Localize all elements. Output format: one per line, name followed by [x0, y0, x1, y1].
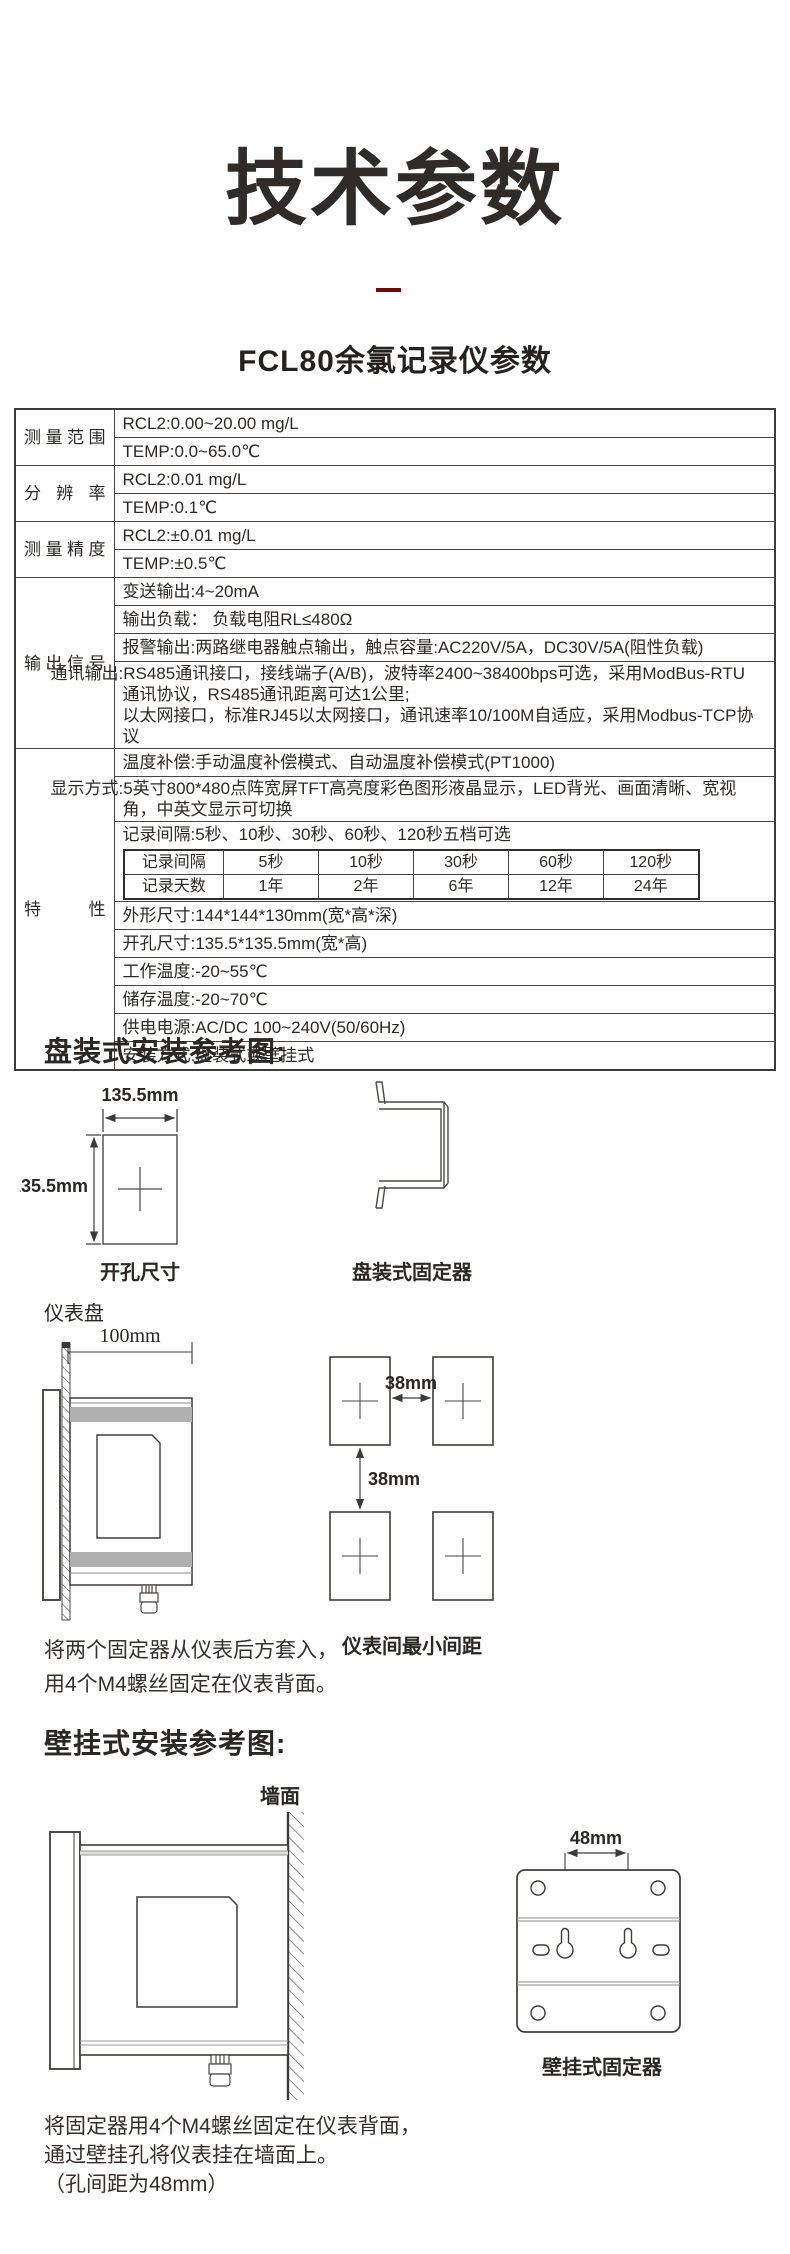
spec-group-label: 测量范围: [15, 409, 114, 466]
section-heading-wall-install: 壁挂式安装参考图:: [44, 1722, 286, 1762]
cable-gland: [140, 1585, 158, 1613]
wall-hatching: [289, 1812, 304, 2100]
spec-table-wrap: 测量范围 RCL2:0.00~20.00 mg/L TEMP:0.0~65.0℃…: [14, 408, 776, 1071]
table-row: TEMP:0.1℃: [15, 494, 775, 522]
record-cell-value: 1年: [224, 875, 319, 900]
spec-value-cell: 外形尺寸:144*144*130mm(宽*高*深): [114, 902, 775, 930]
depth-dim-label: 100mm: [99, 1325, 161, 1347]
table-row: 报警输出:两路继电器触点输出，触点容量:AC220V/5A，DC30V/5A(阻…: [15, 634, 775, 662]
fixer-band-bottom: [70, 1552, 192, 1567]
table-row: 通讯输出:RS485通讯接口，接线端子(A/B)，波特率2400~38400bp…: [15, 662, 775, 749]
wall-mount-side-view-diagram: [30, 1808, 310, 2106]
spec-value-cell: 温度补偿:手动温度补偿模式、自动温度补偿模式(PT1000): [114, 749, 775, 777]
wall-caption-line3: （孔间距为48mm）: [44, 2170, 421, 2199]
record-header-cell: 记录天数: [124, 875, 224, 900]
wall-caption-line2: 通过壁挂孔将仪表挂在墙面上。: [44, 2141, 421, 2170]
page-subtitle: FCL80余氯记录仪参数: [0, 336, 790, 380]
record-cell-value: 12年: [509, 875, 604, 900]
wall-plate-label: 壁挂式固定器: [518, 2051, 686, 2080]
cutout-width-dim-label: 135.5mm: [101, 1085, 178, 1105]
spacing-figure-label: 仪表间最小间距: [338, 1630, 486, 1659]
table-row: 记录天数 1年 2年 6年 12年 24年: [124, 875, 699, 900]
table-row: 测量范围 RCL2:0.00~20.00 mg/L: [15, 409, 775, 438]
spec-value-cell: TEMP:0.1℃: [114, 494, 775, 522]
wall-install-caption: 将固定器用4个M4螺丝固定在仪表背面， 通过壁挂孔将仪表挂在墙面上。 （孔间距为…: [44, 2112, 421, 2199]
meter-front-bezel: [43, 1390, 60, 1600]
table-row: 输出信号 变送输出:4~20mA: [15, 578, 775, 606]
table-row: 记录间隔 5秒 10秒 30秒 60秒 120秒: [124, 850, 699, 875]
cutout-dimension-diagram: 135.5mm 135.5mm: [20, 1075, 200, 1253]
section-heading-panel-install: 盘装式安装参考图:: [44, 1030, 286, 1070]
spec-value-cell: 开孔尺寸:135.5*135.5mm(宽*高): [114, 930, 775, 958]
cable-gland: [209, 2055, 231, 2086]
record-cell-value: 5秒: [224, 850, 319, 875]
spec-value-cell: RCL2:±0.01 mg/L: [114, 522, 775, 550]
record-header-cell: 记录间隔: [124, 850, 224, 875]
record-interval-text: 记录间隔:5秒、10秒、30秒、60秒、120秒五档可选: [123, 823, 767, 846]
spec-value-cell: 报警输出:两路继电器触点输出，触点容量:AC220V/5A，DC30V/5A(阻…: [114, 634, 775, 662]
spec-value-cell: 变送输出:4~20mA: [114, 578, 775, 606]
cutout-figure-label: 开孔尺寸: [83, 1256, 197, 1285]
table-row: TEMP:0.0~65.0℃: [15, 438, 775, 466]
spec-group-label: 分辨率: [15, 466, 114, 522]
table-row: 测量精度 RCL2:±0.01 mg/L: [15, 522, 775, 550]
record-cell-value: 60秒: [509, 850, 604, 875]
wall-plate-diagram: 48mm: [505, 1822, 700, 2044]
record-cell-value: 6年: [414, 875, 509, 900]
table-row: 记录间隔:5秒、10秒、30秒、60秒、120秒五档可选 记录间隔 5秒 10秒…: [15, 822, 775, 902]
wall-surface-label: 墙面: [260, 1780, 300, 1809]
table-row: 输出负载： 负载电阻RL≤480Ω: [15, 606, 775, 634]
panel-bracket-diagram: [362, 1080, 454, 1228]
spec-table: 测量范围 RCL2:0.00~20.00 mg/L TEMP:0.0~65.0℃…: [14, 408, 776, 1071]
table-row: TEMP:±0.5℃: [15, 550, 775, 578]
spec-group-label: 测量精度: [15, 522, 114, 578]
meter-window-cutout: [137, 1897, 237, 2007]
table-row: 开孔尺寸:135.5*135.5mm(宽*高): [15, 930, 775, 958]
meter-side-view-diagram: 100mm: [35, 1290, 200, 1625]
wall-caption-line1: 将固定器用4个M4螺丝固定在仪表背面，: [44, 2112, 421, 2141]
meter-window-cutout: [97, 1435, 160, 1538]
table-row: 分辨率 RCL2:0.01 mg/L: [15, 466, 775, 494]
record-cell-value: 24年: [604, 875, 699, 900]
table-row: 工作温度:-20~55℃: [15, 958, 775, 986]
spacing-h-dim-label: 38mm: [385, 1373, 437, 1393]
table-row: 外形尺寸:144*144*130mm(宽*高*深): [15, 902, 775, 930]
spec-value-cell: 显示方式:5英寸800*480点阵宽屏TFT高亮度彩色图形液晶显示，LED背光、…: [114, 777, 775, 822]
panel-bracket-label: 盘装式固定器: [347, 1256, 477, 1285]
spec-value-cell: 工作温度:-20~55℃: [114, 958, 775, 986]
meter-spacing-diagram: 38mm 38mm: [320, 1345, 505, 1605]
fixer-band-top: [70, 1407, 192, 1422]
cutout-height-dim-label: 135.5mm: [20, 1176, 88, 1196]
table-row: 特性 温度补偿:手动温度补偿模式、自动温度补偿模式(PT1000): [15, 749, 775, 777]
panel-caption-line2: 用4个M4螺丝固定在仪表背面。: [44, 1668, 338, 1702]
spec-value-cell: TEMP:0.0~65.0℃: [114, 438, 775, 466]
page-title: 技术参数: [0, 146, 790, 234]
spec-value-cell: RCL2:0.00~20.00 mg/L: [114, 409, 775, 438]
table-row: 储存温度:-20~70℃: [15, 986, 775, 1014]
spec-value-cell: 通讯输出:RS485通讯接口，接线端子(A/B)，波特率2400~38400bp…: [114, 662, 775, 749]
record-cell: 记录间隔:5秒、10秒、30秒、60秒、120秒五档可选 记录间隔 5秒 10秒…: [114, 822, 775, 902]
panel-hatched-strip: [62, 1343, 70, 1620]
spec-value-cell: 输出负载： 负载电阻RL≤480Ω: [114, 606, 775, 634]
panel-caption-line1: 将两个固定器从仪表后方套入，: [44, 1634, 338, 1668]
record-interval-table: 记录间隔 5秒 10秒 30秒 60秒 120秒 记录天数 1年: [123, 849, 700, 900]
accent-dash: [376, 288, 401, 292]
record-cell-value: 120秒: [604, 850, 699, 875]
meter-front-bezel: [50, 1832, 80, 2069]
technical-parameters-page: 技术参数 FCL80余氯记录仪参数 测量范围 RCL2:0.00~20.00 m…: [0, 0, 790, 2254]
record-cell-value: 10秒: [319, 850, 414, 875]
spec-value-cell: 储存温度:-20~70℃: [114, 986, 775, 1014]
table-row: 显示方式:5英寸800*480点阵宽屏TFT高亮度彩色图形液晶显示，LED背光、…: [15, 777, 775, 822]
spacing-v-dim-label: 38mm: [368, 1469, 420, 1489]
panel-install-caption: 将两个固定器从仪表后方套入， 用4个M4螺丝固定在仪表背面。: [44, 1634, 338, 1702]
spec-value-cell: TEMP:±0.5℃: [114, 550, 775, 578]
record-cell-value: 2年: [319, 875, 414, 900]
record-cell-value: 30秒: [414, 850, 509, 875]
spec-value-cell: RCL2:0.01 mg/L: [114, 466, 775, 494]
hole-spacing-dim-label: 48mm: [570, 1828, 622, 1848]
